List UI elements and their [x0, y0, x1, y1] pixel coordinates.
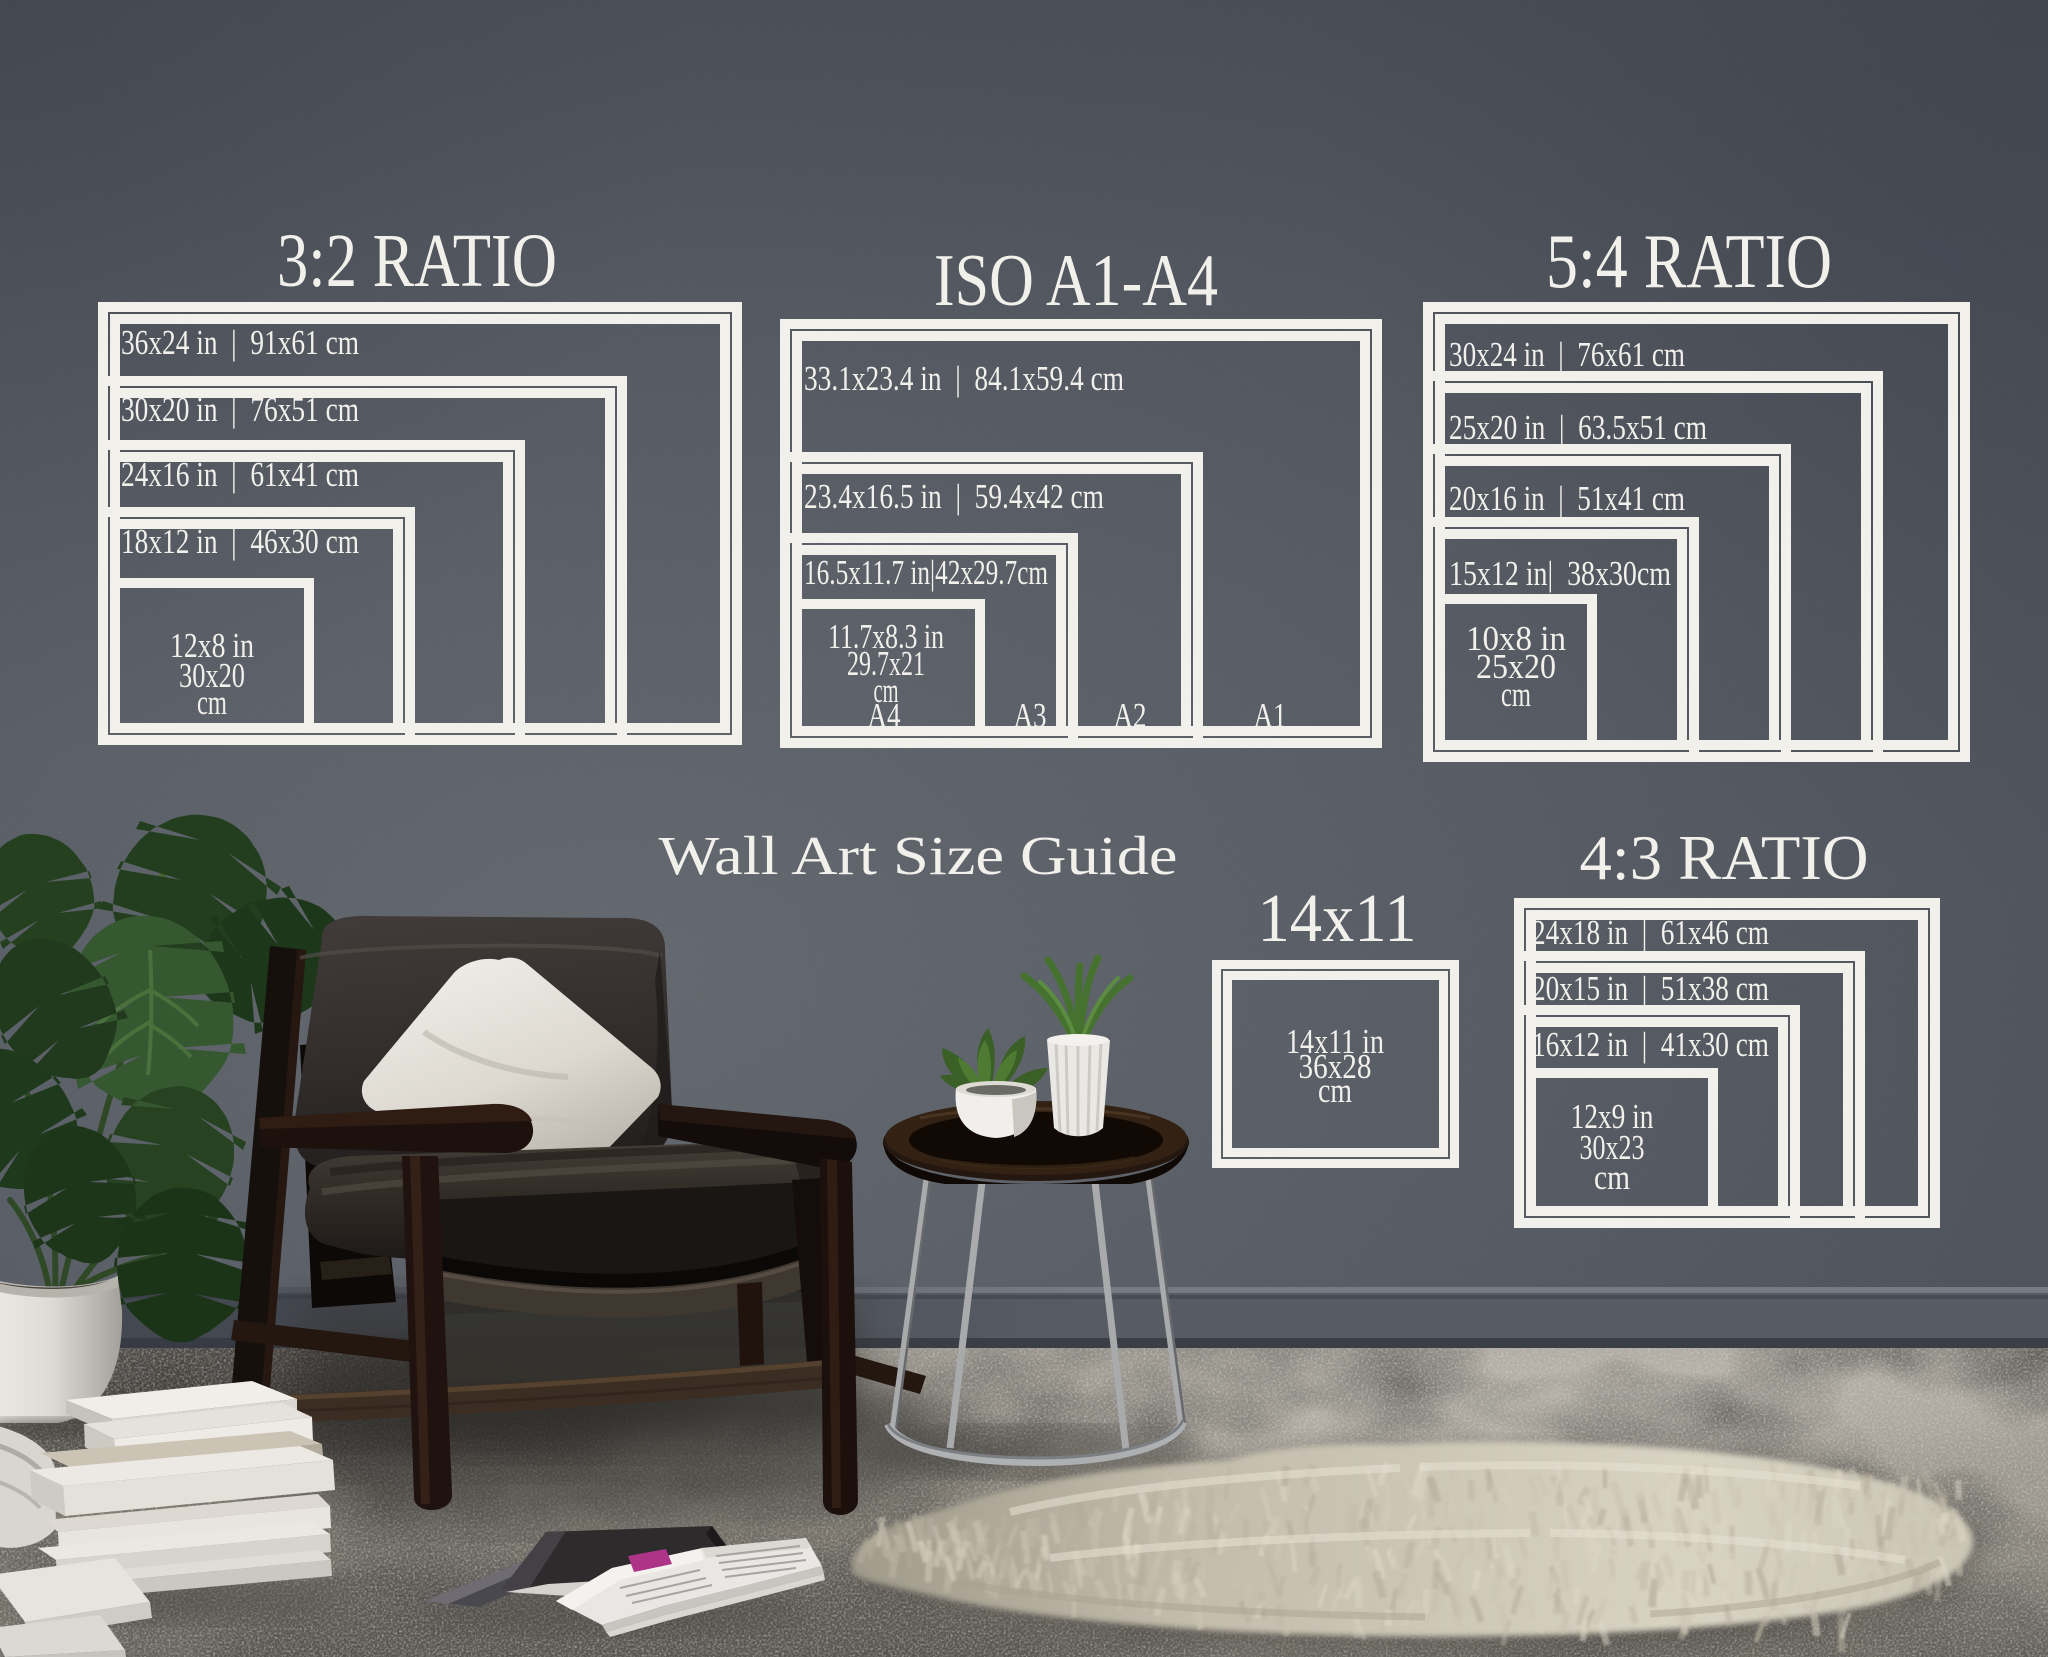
- svg-text:16.5x11.7 in|42x29.7cm: 16.5x11.7 in|42x29.7cm: [804, 553, 1048, 592]
- svg-text:A4: A4: [868, 696, 901, 735]
- svg-text:cm: cm: [1318, 1071, 1352, 1110]
- svg-text:A2: A2: [1114, 696, 1147, 735]
- svg-text:14x11: 14x11: [1258, 880, 1417, 956]
- svg-text:20x16 in | 51x41 cm: 20x16 in | 51x41 cm: [1449, 479, 1685, 518]
- svg-text:23.4x16.5 in | 59.4x42 cm: 23.4x16.5 in | 59.4x42 cm: [804, 477, 1104, 516]
- svg-text:30x20 in | 76x51 cm: 30x20 in | 76x51 cm: [121, 390, 359, 429]
- svg-text:33.1x23.4 in | 84.1x59.4 cm: 33.1x23.4 in | 84.1x59.4 cm: [804, 359, 1124, 398]
- svg-text:30x24 in | 76x61 cm: 30x24 in | 76x61 cm: [1449, 335, 1685, 374]
- svg-text:4:3 RATIO: 4:3 RATIO: [1580, 822, 1869, 893]
- svg-text:cm: cm: [1501, 675, 1531, 714]
- svg-text:5:4 RATIO: 5:4 RATIO: [1546, 218, 1832, 304]
- svg-text:18x12 in | 46x30 cm: 18x12 in | 46x30 cm: [121, 522, 359, 561]
- svg-text:ISO A1-A4: ISO A1-A4: [934, 240, 1218, 322]
- svg-text:25x20 in | 63.5x51 cm: 25x20 in | 63.5x51 cm: [1449, 408, 1707, 447]
- svg-text:16x12 in | 41x30 cm: 16x12 in | 41x30 cm: [1532, 1025, 1769, 1064]
- svg-text:20x15 in | 51x38 cm: 20x15 in | 51x38 cm: [1532, 969, 1769, 1008]
- svg-text:A1: A1: [1254, 696, 1287, 735]
- svg-text:3:2 RATIO: 3:2 RATIO: [277, 219, 557, 303]
- svg-text:36x24 in | 91x61 cm: 36x24 in | 91x61 cm: [121, 323, 359, 362]
- svg-text:Wall Art Size Guide: Wall Art Size Guide: [659, 825, 1178, 886]
- svg-text:cm: cm: [197, 683, 227, 722]
- svg-text:15x12 in| 38x30cm: 15x12 in| 38x30cm: [1449, 554, 1671, 593]
- svg-text:A3: A3: [1014, 696, 1047, 735]
- svg-text:24x18 in | 61x46 cm: 24x18 in | 61x46 cm: [1532, 913, 1769, 952]
- svg-text:24x16 in | 61x41 cm: 24x16 in | 61x41 cm: [121, 455, 359, 494]
- svg-text:cm: cm: [1594, 1158, 1630, 1197]
